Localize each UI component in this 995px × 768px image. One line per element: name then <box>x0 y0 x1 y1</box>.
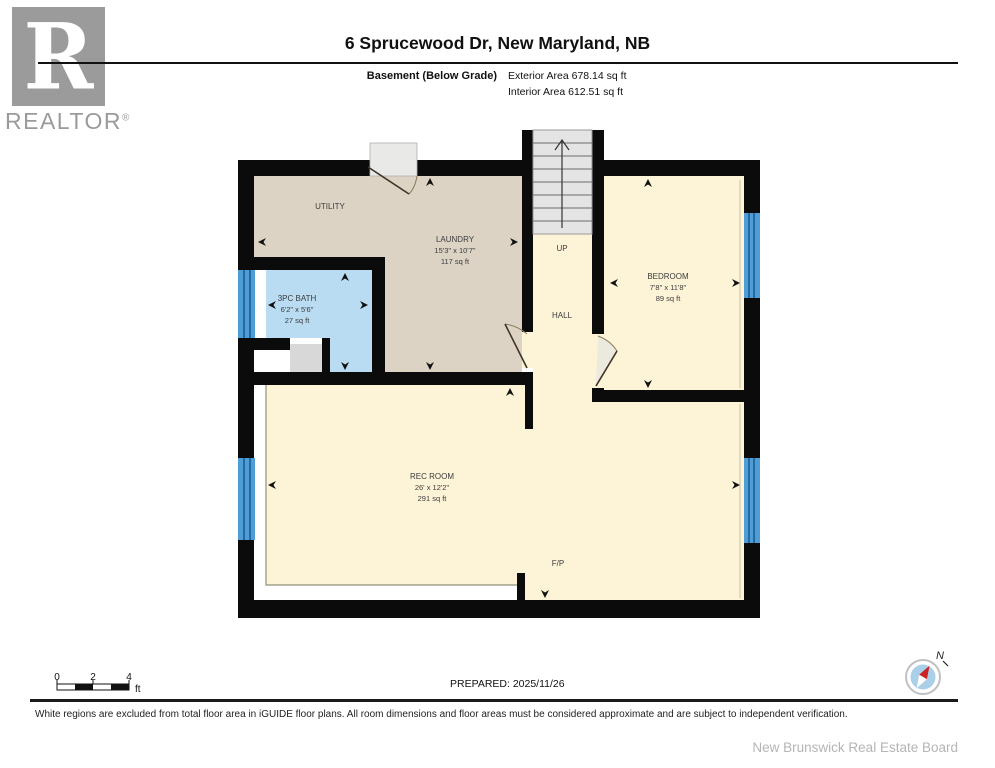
bath-floor-ext <box>330 338 372 372</box>
hall-label: HALL <box>552 311 573 320</box>
hall-floor <box>533 232 592 600</box>
utility-label: UTILITY <box>315 202 345 211</box>
laundry-label: LAUNDRY <box>436 235 475 244</box>
recroom-area: 291 sq ft <box>418 494 448 503</box>
recroom-dims: 26' x 12'2" <box>415 483 450 492</box>
floorplan-page: R REALTOR® 6 Sprucewood Dr, New Maryland… <box>0 0 995 768</box>
scale-unit: ft <box>135 684 141 695</box>
laundry-floor <box>385 257 522 372</box>
floorplan-drawing: UTILITY LAUNDRY 15'3" x 10'7" 117 sq ft … <box>0 0 995 768</box>
disclaimer-text: White regions are excluded from total fl… <box>35 709 955 720</box>
bath-dims: 6'2" x 5'6" <box>281 305 314 314</box>
board-branding: New Brunswick Real Estate Board <box>752 740 958 755</box>
compass-icon: N <box>906 650 948 694</box>
recroom-label: REC ROOM <box>410 472 454 481</box>
laundry-dims: 15'3" x 10'7" <box>434 246 475 255</box>
compass-north-label: N <box>936 650 944 662</box>
bedroom-label: BEDROOM <box>647 272 689 281</box>
floor-fills <box>254 176 744 600</box>
window-rec-right <box>744 458 760 543</box>
recroom-floor <box>266 385 517 585</box>
stairs <box>533 130 592 234</box>
closet-floor <box>290 344 322 372</box>
bath-floor <box>266 270 372 338</box>
bath-label: 3PC BATH <box>278 294 317 303</box>
window-rec-left <box>238 458 255 540</box>
bedroom-area: 89 sq ft <box>656 294 682 303</box>
header-divider <box>38 62 958 64</box>
window-bedroom-right <box>744 213 760 298</box>
fireplace-label: F/P <box>552 559 564 568</box>
window-bath-left <box>238 270 255 338</box>
laundry-area: 117 sq ft <box>441 257 470 266</box>
up-label: UP <box>556 244 567 253</box>
bath-area: 27 sq ft <box>285 316 311 325</box>
footer-divider <box>30 699 958 702</box>
recroom-floor-right <box>592 402 744 600</box>
prepared-date: PREPARED: 2025/11/26 <box>450 678 565 690</box>
bedroom-dims: 7'8" x 11'8" <box>650 283 687 292</box>
utility-floor <box>254 176 522 257</box>
scale-bar: 0 2 4 ft <box>54 672 141 695</box>
